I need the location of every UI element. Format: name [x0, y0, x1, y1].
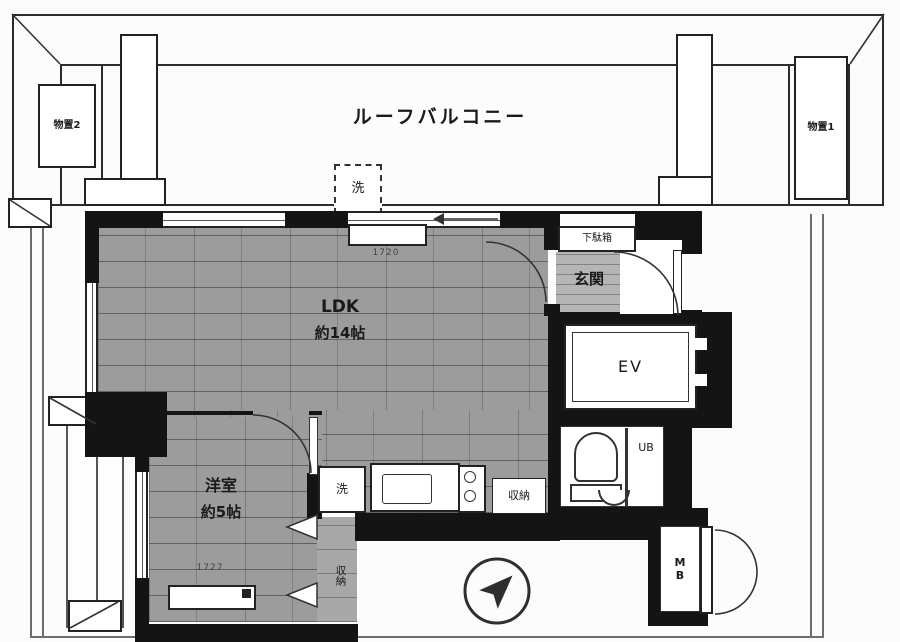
kitchen-storage-label: 収納 — [508, 490, 530, 503]
room-closet-label: 収納 — [330, 540, 352, 610]
meter-box-door-strip — [700, 526, 713, 614]
balcony-wall-stub-right-base — [658, 176, 713, 206]
site-boundary-right-inner — [810, 214, 812, 638]
window-western-left — [135, 472, 148, 578]
meter-box-label: MB — [662, 534, 698, 604]
window-glass-line — [92, 283, 93, 392]
entrance-door-leaf — [673, 250, 682, 314]
site-boundary-right-outer — [822, 214, 824, 638]
kitchen-storage: 収納 — [492, 478, 546, 514]
wall-western-left-top — [135, 417, 149, 472]
storage-box-right: 物置1 — [794, 56, 848, 200]
wall-bottom — [135, 624, 358, 642]
kitchen-sink — [382, 474, 432, 504]
shoe-cabinet: 下駄箱 — [558, 226, 636, 252]
sill-mark — [242, 589, 251, 598]
elevator-door-mark-2 — [695, 374, 707, 386]
wall-ldk-right-upper — [544, 228, 558, 250]
window-top-1 — [163, 211, 285, 228]
window-glass-line — [163, 220, 285, 221]
storage-left-label: 物置2 — [54, 120, 81, 132]
partition-western-top-right — [309, 411, 322, 415]
wall-step-corner — [85, 392, 167, 457]
western-door-leaf — [309, 417, 318, 475]
dimension-bottom: 1727 — [180, 562, 240, 574]
window-left — [85, 283, 98, 392]
balcony-wall-stub-left-base — [84, 178, 166, 206]
washer-pad-label: 洗 — [336, 483, 348, 497]
ldk-label: LDK — [255, 294, 425, 322]
partition-western-top-left — [160, 411, 253, 415]
stove-burner-2 — [464, 490, 476, 502]
wall-top-3 — [498, 211, 560, 228]
compass-icon — [465, 559, 529, 623]
window-glass-line — [142, 472, 143, 578]
window-glass-line — [348, 220, 500, 221]
compass-needle — [479, 575, 512, 608]
dimension-top: 1720 — [356, 247, 416, 259]
elevator-label: EV — [572, 332, 689, 402]
window-counter — [348, 224, 427, 246]
ldk-size-label: 約14帖 — [255, 322, 425, 346]
wall-top-2 — [285, 211, 348, 228]
side-ledge-cap-bottom — [68, 600, 122, 632]
wall-kitchen-bottom — [355, 513, 560, 541]
unit-bath-label: UB — [629, 440, 663, 456]
storage-right-label: 物置1 — [808, 122, 835, 134]
meter-box-door-arc-bottom — [715, 572, 757, 614]
compass-circle — [465, 559, 529, 623]
western-room-label: 洋室 — [166, 472, 276, 500]
balcony-parapet-line-right — [788, 64, 790, 206]
wall-right-below-door — [681, 310, 702, 324]
wall-left-upper — [85, 211, 99, 283]
wall-entrance-topline — [558, 211, 638, 214]
stove-burner-1 — [464, 471, 476, 483]
washer-pad: 洗 — [318, 466, 366, 513]
floor-plan: 物置2 物置1 ルーフバルコニー 洗 下駄箱 玄関 — [0, 0, 900, 642]
balcony-washer-pad: 洗 — [334, 164, 382, 214]
entrance-label: 玄関 — [556, 264, 622, 296]
meter-box-door-arc-top — [715, 530, 757, 572]
balcony-label: ルーフバルコニー — [300, 104, 580, 132]
site-boundary-left-inner — [42, 198, 44, 638]
shoe-cabinet-label: 下駄箱 — [582, 233, 612, 245]
toilet-icon — [574, 432, 618, 482]
bath-door-line — [625, 428, 628, 507]
western-room-size-label: 約5帖 — [166, 500, 276, 526]
elevator-door-mark-1 — [695, 338, 707, 350]
balcony-parapet-inner — [60, 64, 850, 206]
site-boundary-left-outer — [30, 198, 32, 638]
storage-box-left: 物置2 — [38, 84, 96, 168]
balcony-corner-block — [8, 198, 52, 228]
balcony-washer-label: 洗 — [351, 182, 364, 197]
